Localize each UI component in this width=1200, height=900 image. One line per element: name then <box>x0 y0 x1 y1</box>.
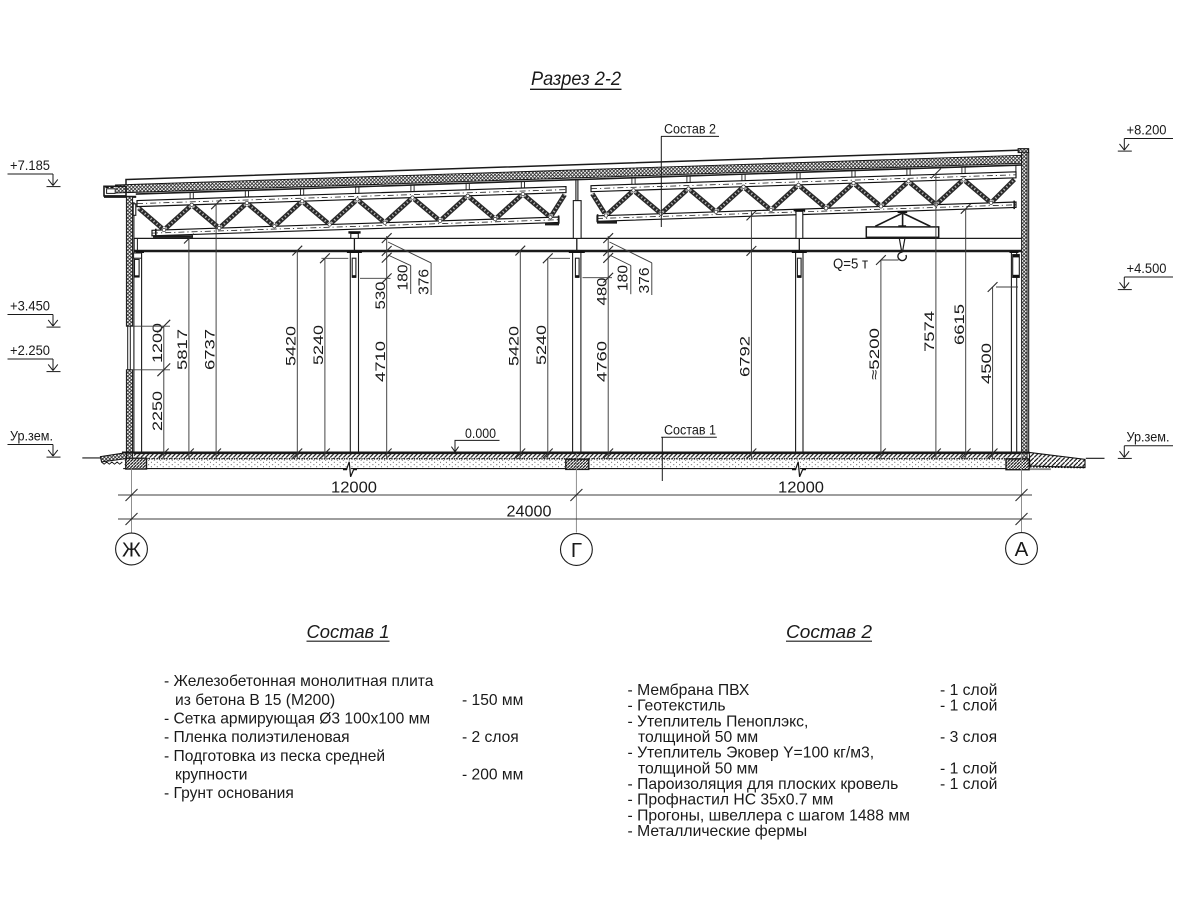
svg-text:Ж: Ж <box>122 538 141 561</box>
svg-text:6792: 6792 <box>738 336 754 377</box>
svg-text:+8.200: +8.200 <box>1127 122 1167 137</box>
svg-text:А: А <box>1015 538 1029 561</box>
svg-text:+7.185: +7.185 <box>10 158 50 173</box>
svg-text:Г: Г <box>571 539 582 562</box>
svg-text:- 3 слоя: - 3 слоя <box>940 729 997 746</box>
svg-text:толщиной 50 мм: толщиной 50 мм <box>638 729 758 746</box>
svg-text:5240: 5240 <box>311 325 327 365</box>
svg-text:12000: 12000 <box>778 480 824 497</box>
svg-text:- 150 мм: - 150 мм <box>462 692 523 709</box>
svg-text:+4.500: +4.500 <box>1127 261 1167 276</box>
svg-text:1200: 1200 <box>150 323 166 363</box>
svg-text:- Металлические фермы: - Металлические фермы <box>628 823 808 840</box>
svg-text:180: 180 <box>395 264 411 290</box>
svg-text:Состав 1: Состав 1 <box>664 423 716 439</box>
svg-text:4710: 4710 <box>373 341 389 382</box>
svg-text:из бетона В 15 (М200): из бетона В 15 (М200) <box>175 692 335 709</box>
svg-text:- 1 слой: - 1 слой <box>940 776 997 793</box>
svg-text:0.000: 0.000 <box>465 426 496 441</box>
svg-text:6615: 6615 <box>952 304 968 345</box>
svg-text:≈5200: ≈5200 <box>867 328 883 380</box>
svg-text:- 1 слой: - 1 слой <box>940 698 997 715</box>
svg-text:Разрез 2-2: Разрез 2-2 <box>531 69 621 90</box>
svg-text:- Пленка полиэтиленовая: - Пленка полиэтиленовая <box>164 729 350 746</box>
svg-text:Ур.зем.: Ур.зем. <box>10 428 53 443</box>
svg-text:- Геотекстиль: - Геотекстиль <box>628 698 726 715</box>
svg-text:6737: 6737 <box>202 329 218 370</box>
svg-text:5420: 5420 <box>284 326 300 366</box>
svg-text:- Грунт основания: - Грунт основания <box>164 785 294 802</box>
svg-text:4760: 4760 <box>594 341 610 382</box>
svg-text:24000: 24000 <box>507 504 552 521</box>
svg-text:- Подготовка из песка средней: - Подготовка из песка средней <box>164 748 385 765</box>
svg-text:5240: 5240 <box>534 325 550 365</box>
svg-text:- Пароизоляция для плоских кро: - Пароизоляция для плоских кровель <box>628 776 899 793</box>
svg-text:180: 180 <box>616 265 632 291</box>
svg-text:4500: 4500 <box>979 343 995 384</box>
svg-text:530: 530 <box>373 281 389 309</box>
svg-text:376: 376 <box>417 269 433 295</box>
svg-text:Состав 1: Состав 1 <box>307 622 390 642</box>
svg-text:Q=5 т: Q=5 т <box>833 256 868 273</box>
svg-text:- Профнастил НС 35х0.7 мм: - Профнастил НС 35х0.7 мм <box>628 792 834 809</box>
svg-text:480: 480 <box>594 277 610 305</box>
svg-text:- Утеплитель Пеноплэкс,: - Утеплитель Пеноплэкс, <box>628 713 809 730</box>
svg-text:толщиной 50 мм: толщиной 50 мм <box>638 760 758 777</box>
svg-text:- Утеплитель Эковер Y=100 кг/м: - Утеплитель Эковер Y=100 кг/м3, <box>628 745 875 762</box>
svg-text:+3.450: +3.450 <box>10 298 50 313</box>
svg-text:- Мембрана ПВХ: - Мембрана ПВХ <box>628 682 750 699</box>
svg-text:7574: 7574 <box>922 311 938 352</box>
svg-text:5817: 5817 <box>175 329 191 370</box>
svg-text:2250: 2250 <box>150 391 166 431</box>
svg-text:- Железобетонная монолитная п: - Железобетонная монолитная плита <box>164 673 434 690</box>
svg-text:376: 376 <box>637 268 653 294</box>
svg-text:- Прогоны, швеллера с шагом 14: - Прогоны, швеллера с шагом 1488 мм <box>628 807 910 824</box>
svg-text:Состав 2: Состав 2 <box>664 121 716 137</box>
svg-text:крупности: крупности <box>175 767 248 784</box>
svg-text:- 1 слой: - 1 слой <box>940 760 997 777</box>
svg-text:5420: 5420 <box>507 326 523 366</box>
svg-text:- 2 слоя: - 2 слоя <box>462 729 519 746</box>
svg-text:Состав 2: Состав 2 <box>786 622 872 642</box>
svg-text:- 1 слой: - 1 слой <box>940 682 997 699</box>
svg-text:- 200 мм: - 200 мм <box>462 767 523 784</box>
svg-text:12000: 12000 <box>331 480 377 497</box>
svg-text:- Сетка армирующая Ø3 100х100: - Сетка армирующая Ø3 100х100 мм <box>164 711 430 728</box>
svg-text:Ур.зем.: Ур.зем. <box>1127 430 1170 445</box>
svg-text:+2.250: +2.250 <box>10 343 50 358</box>
